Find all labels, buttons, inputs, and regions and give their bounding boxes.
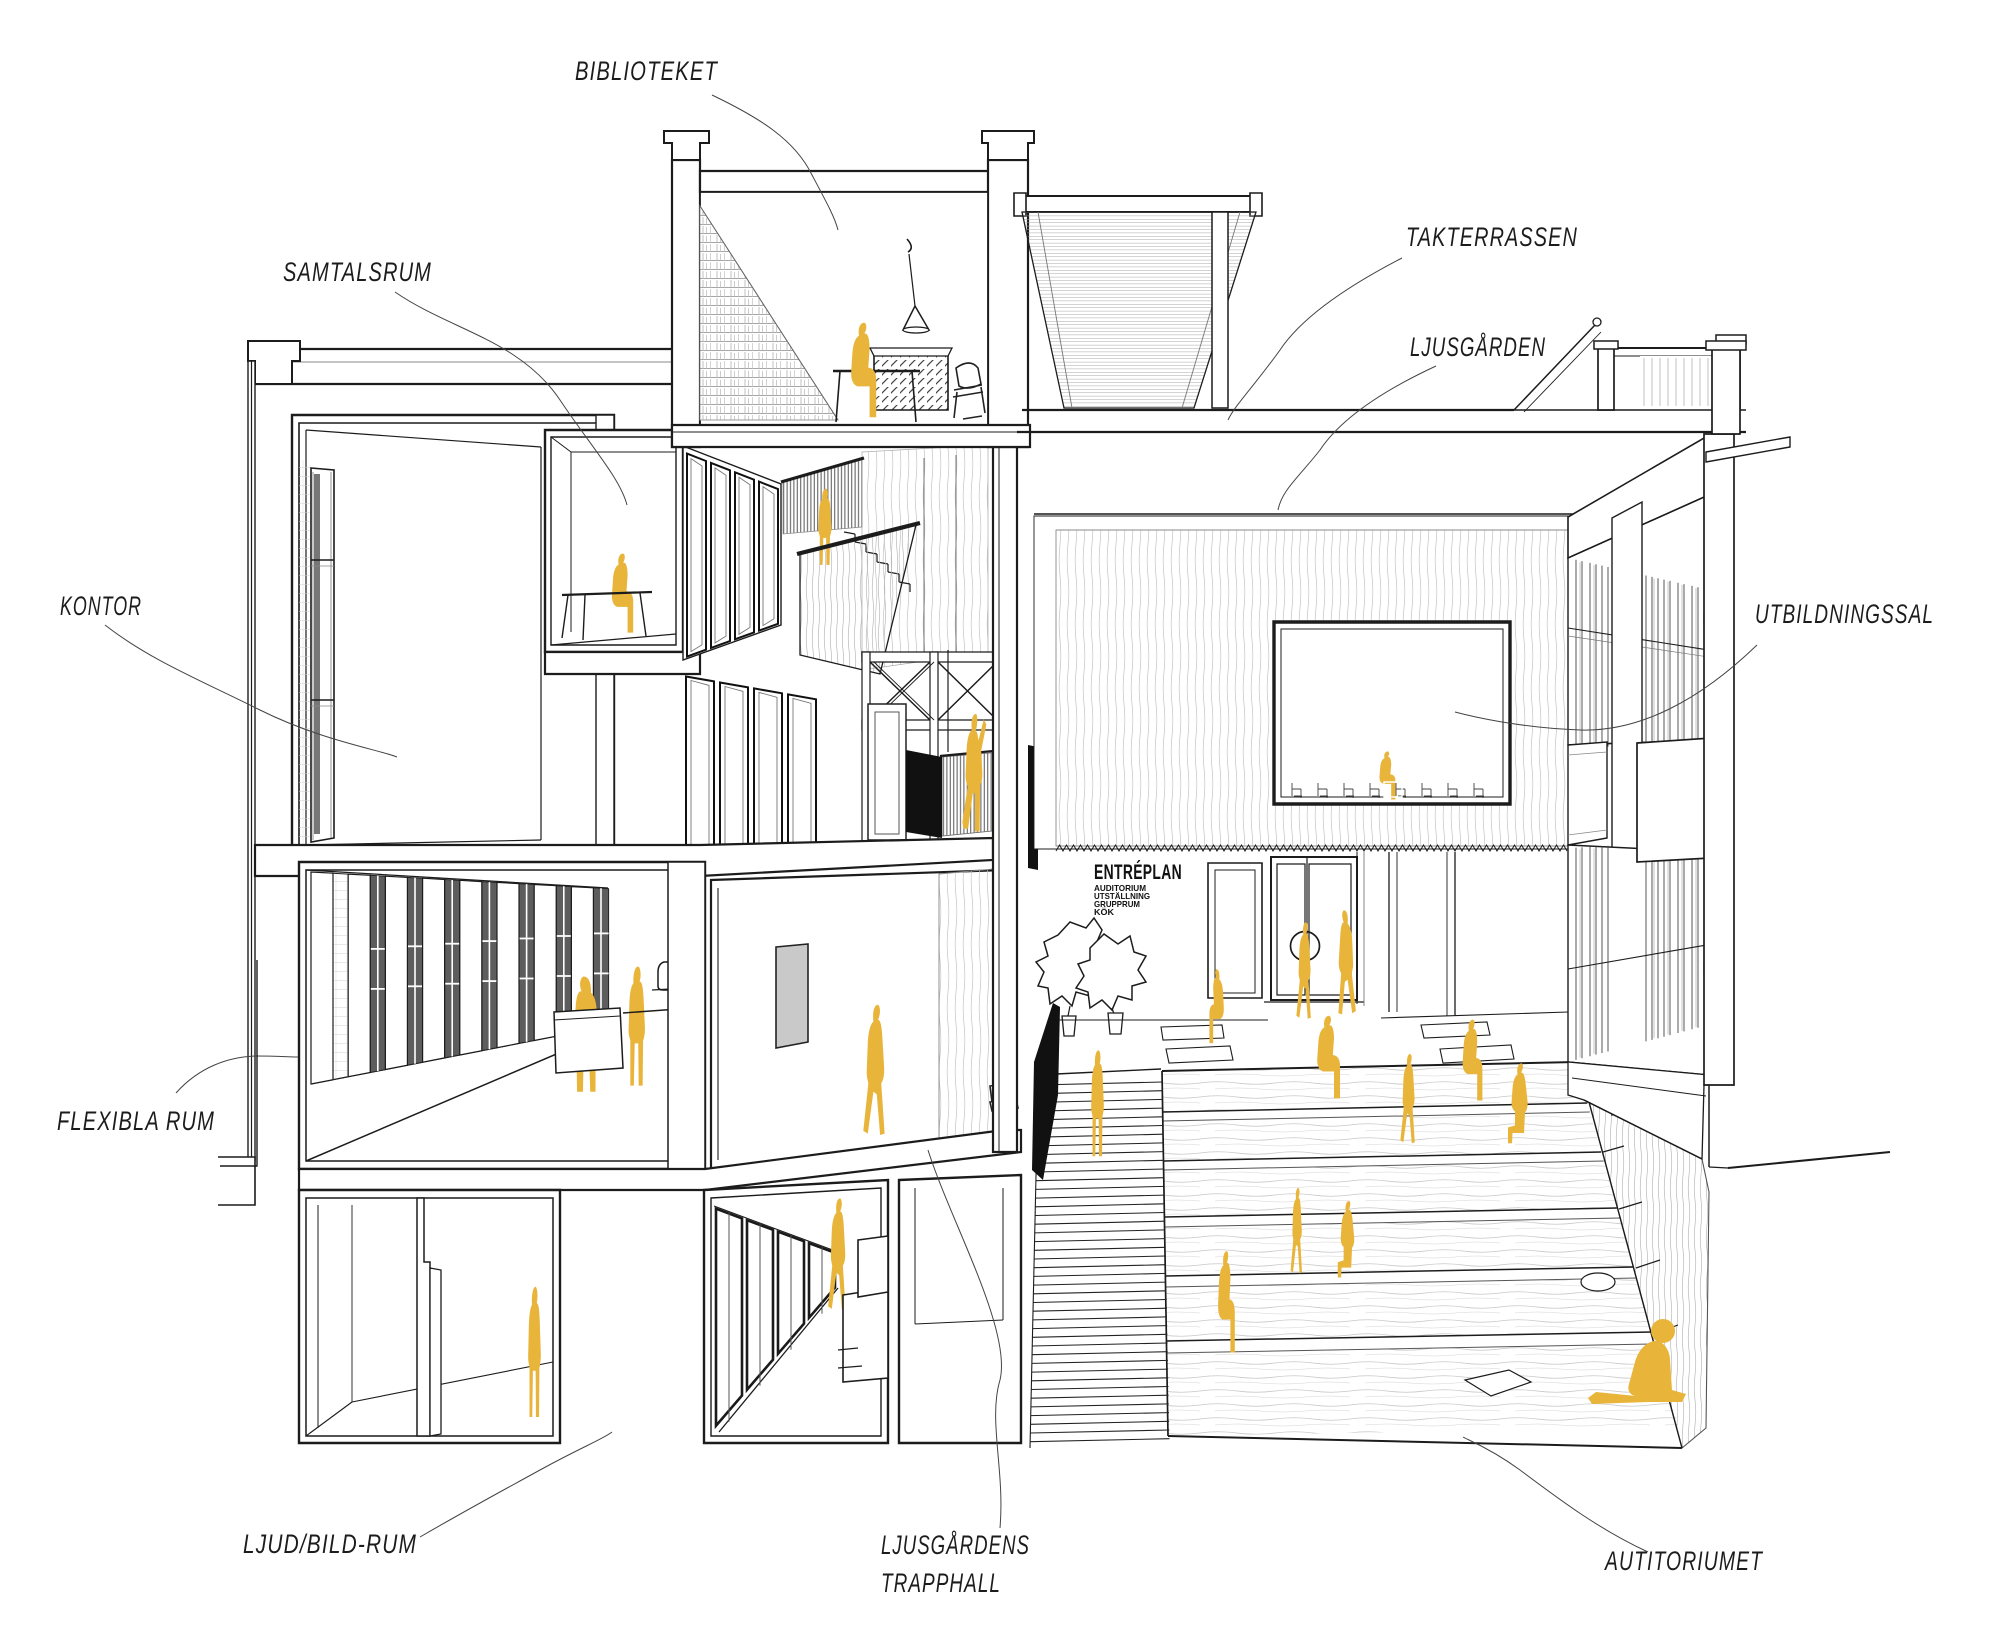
svg-text:KONTOR: KONTOR: [60, 591, 142, 621]
svg-text:LJUD/BILD-RUM: LJUD/BILD-RUM: [243, 1529, 417, 1559]
svg-text:ENTRÉPLAN: ENTRÉPLAN: [1094, 861, 1182, 884]
svg-text:UTBILDNINGSSAL: UTBILDNINGSSAL: [1755, 599, 1934, 629]
svg-text:BIBLIOTEKET: BIBLIOTEKET: [575, 56, 719, 86]
svg-text:TRAPPHALL: TRAPPHALL: [881, 1568, 1001, 1598]
svg-text:FLEXIBLA RUM: FLEXIBLA RUM: [57, 1106, 215, 1136]
svg-text:TAKTERRASSEN: TAKTERRASSEN: [1406, 222, 1578, 252]
svg-text:LJUSGÅRDENS: LJUSGÅRDENS: [881, 1529, 1030, 1560]
svg-text:SAMTALSRUM: SAMTALSRUM: [283, 257, 432, 287]
svg-text:KÖK: KÖK: [1094, 907, 1115, 917]
svg-text:AUTITORIUMET: AUTITORIUMET: [1604, 1546, 1764, 1576]
svg-text:LJUSGÅRDEN: LJUSGÅRDEN: [1410, 331, 1546, 362]
